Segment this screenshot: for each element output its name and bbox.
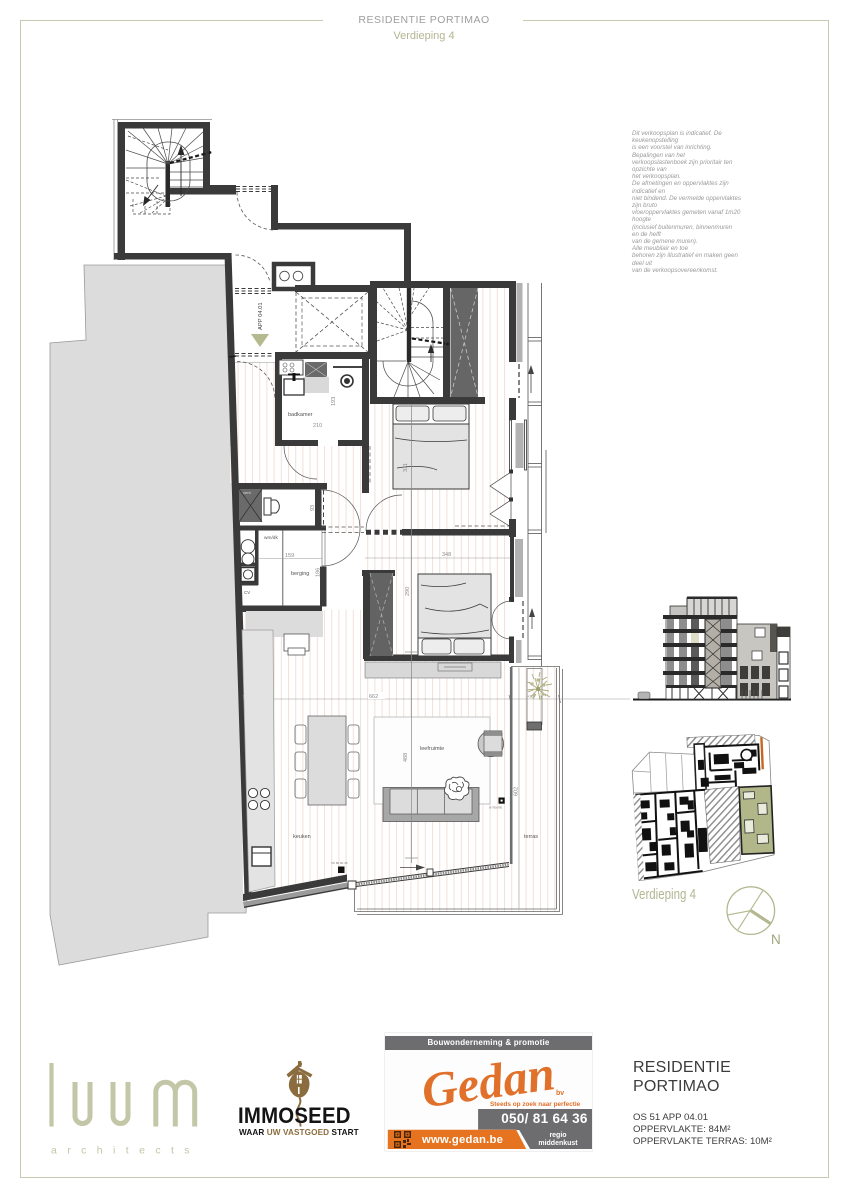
svg-text:210: 210 <box>313 423 322 429</box>
svg-text:VK 80 90 45: VK 80 90 45 <box>331 861 348 865</box>
svg-text:311: 311 <box>403 463 409 472</box>
svg-text:488: 488 <box>403 753 409 762</box>
svg-text:berging: berging <box>291 571 309 577</box>
svg-text:architects: architects <box>51 1145 200 1157</box>
svg-text:terras: terras <box>524 834 538 840</box>
svg-text:93: 93 <box>310 505 316 511</box>
svg-text:APP 04.01: APP 04.01 <box>258 302 264 330</box>
svg-text:290: 290 <box>405 587 411 596</box>
svg-text:662: 662 <box>369 694 378 700</box>
svg-text:W 780x780: W 780x780 <box>489 806 503 810</box>
svg-text:keuken: keuken <box>293 834 311 840</box>
svg-text:159: 159 <box>285 553 294 559</box>
svg-text:badkamer: badkamer <box>288 412 313 418</box>
svg-text:Verdieping 4: Verdieping 4 <box>632 886 696 903</box>
svg-text:CV: CV <box>244 590 250 595</box>
svg-text:N: N <box>771 932 781 947</box>
svg-text:leefruimte: leefruimte <box>420 746 444 752</box>
svg-text:193: 193 <box>331 397 337 406</box>
svg-text:186: 186 <box>316 568 322 577</box>
svg-text:vent.: vent. <box>243 490 252 495</box>
svg-text:602: 602 <box>514 787 520 796</box>
svg-text:wm/dk: wm/dk <box>264 535 278 541</box>
svg-text:348: 348 <box>442 552 451 558</box>
